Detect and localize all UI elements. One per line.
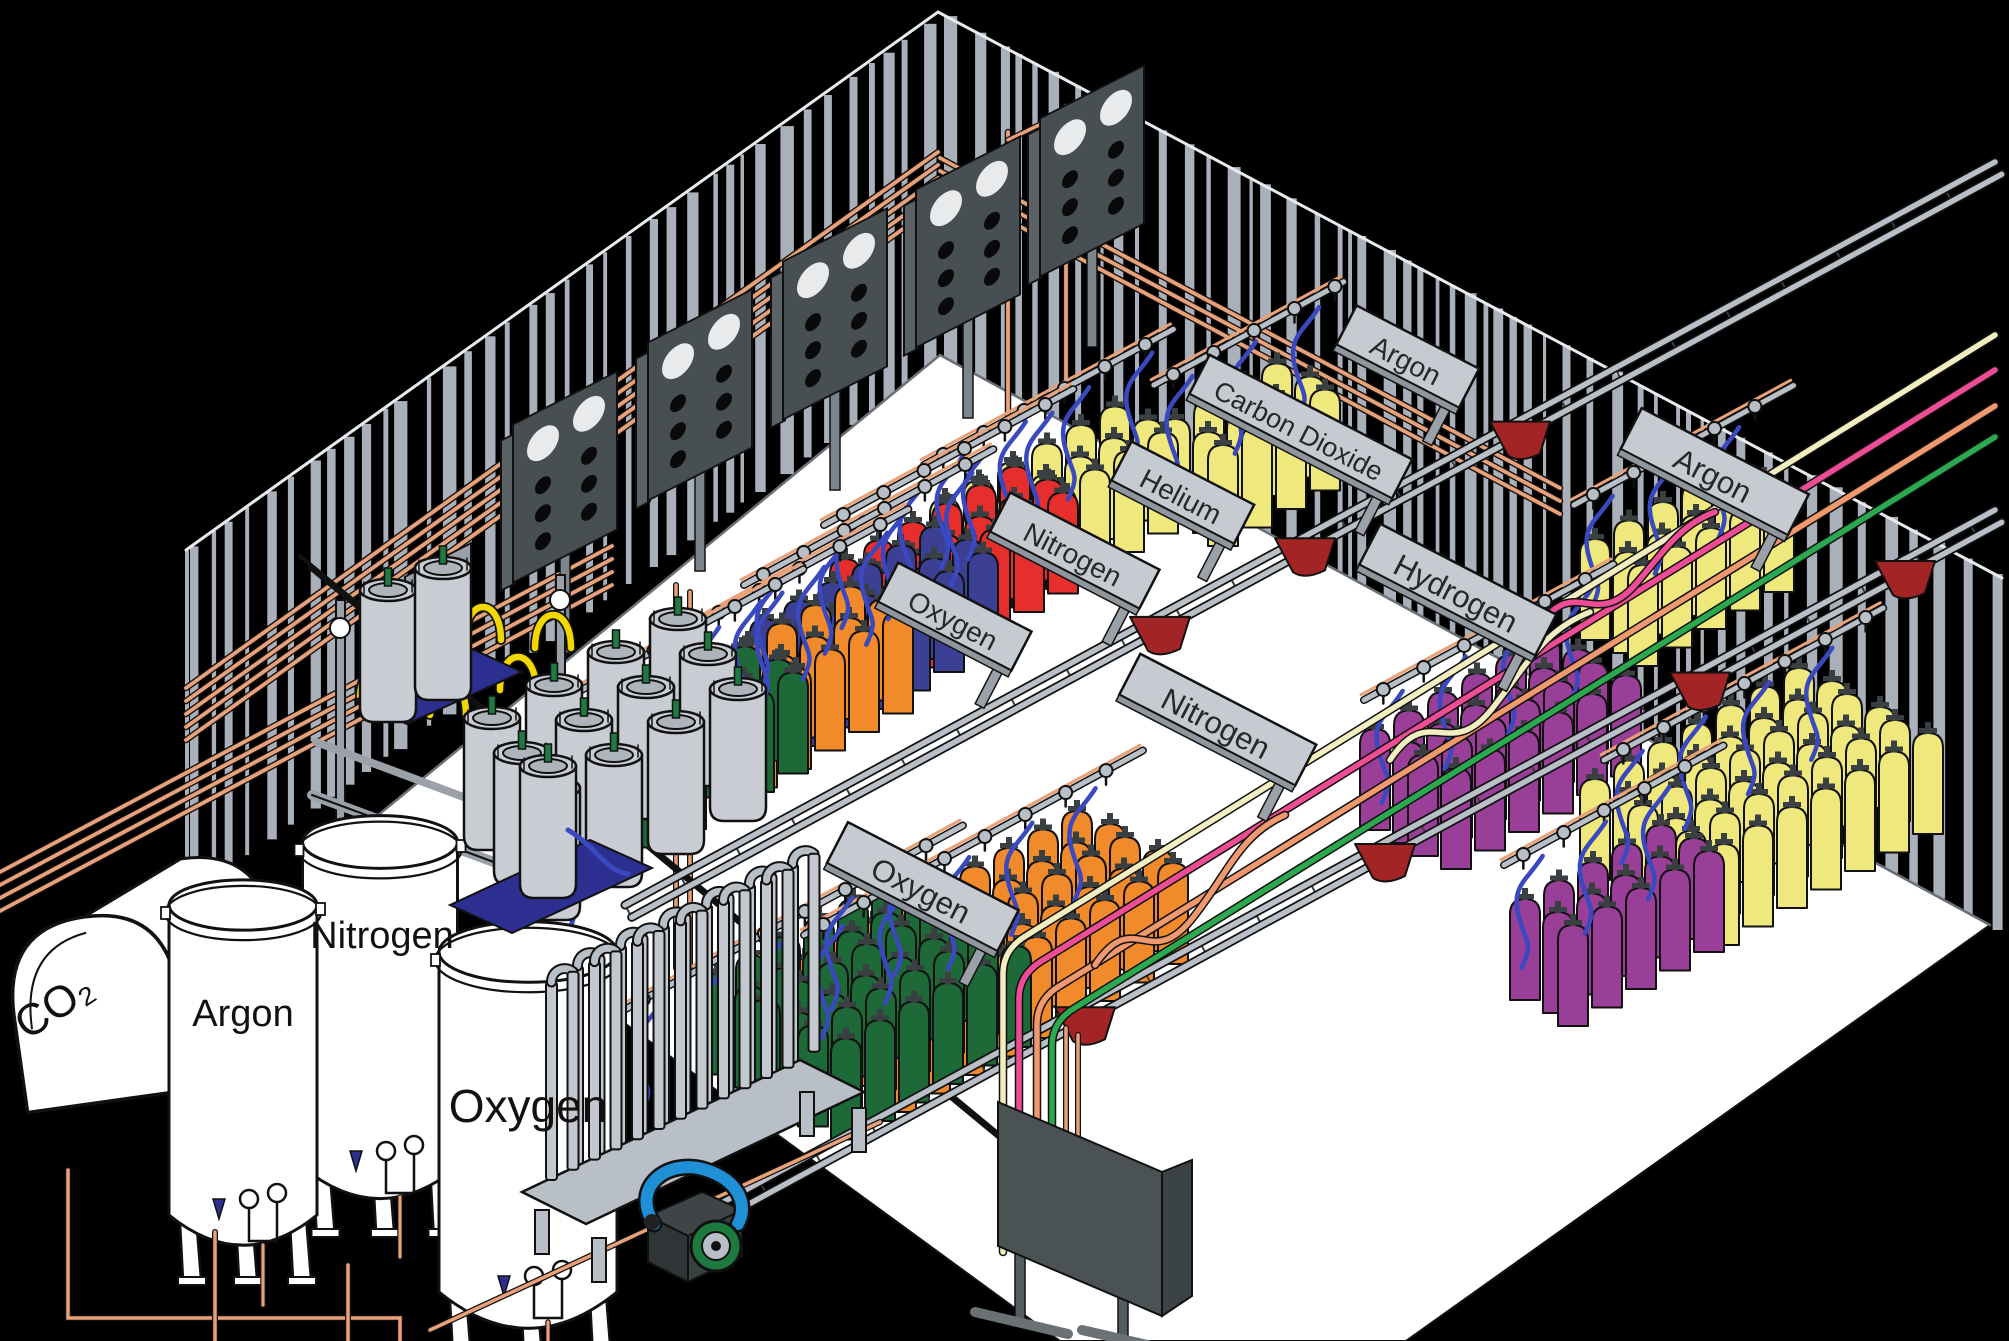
cryo-tank <box>161 880 325 1305</box>
nitrogen-tank-label: Nitrogen <box>310 915 454 957</box>
oxygen-tank-label: Oxygen <box>449 1080 608 1132</box>
gas-plant-illustration: Oxygen Nitrogen Helium Carbon Dioxide Ar… <box>0 0 2009 1341</box>
liquid-dewar <box>648 700 704 854</box>
liquid-dewar <box>520 744 576 898</box>
liquid-dewar <box>360 568 416 722</box>
liquid-dewar <box>710 667 766 821</box>
argon-tank-label: Argon <box>192 993 293 1035</box>
liquid-dewar <box>415 546 471 700</box>
plant-isometric-diagram: Oxygen Nitrogen Helium Carbon Dioxide Ar… <box>0 0 2009 1341</box>
